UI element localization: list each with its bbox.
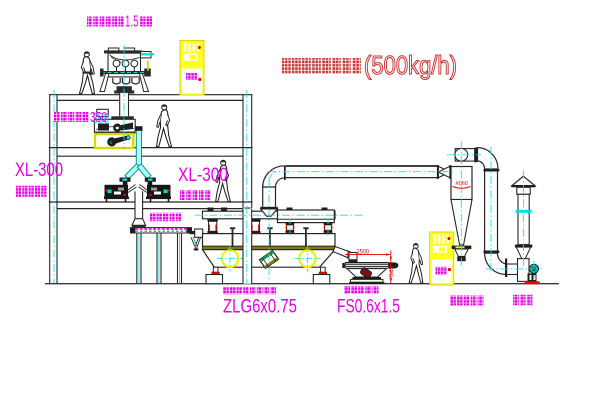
svg-text:1500: 1500 <box>357 249 370 255</box>
svg-text:ZLG6x0.75: ZLG6x0.75 <box>223 297 297 318</box>
svg-text:543: 543 <box>389 266 396 277</box>
svg-text:FS0.6x1.5: FS0.6x1.5 <box>337 297 400 318</box>
svg-text:#060: #060 <box>456 181 469 187</box>
svg-text:(500kg/h): (500kg/h) <box>364 50 457 80</box>
svg-text:1.5: 1.5 <box>125 14 139 31</box>
svg-text:350: 350 <box>90 110 107 126</box>
svg-text:XL-300: XL-300 <box>178 165 228 186</box>
svg-text:XL-300: XL-300 <box>15 160 63 181</box>
